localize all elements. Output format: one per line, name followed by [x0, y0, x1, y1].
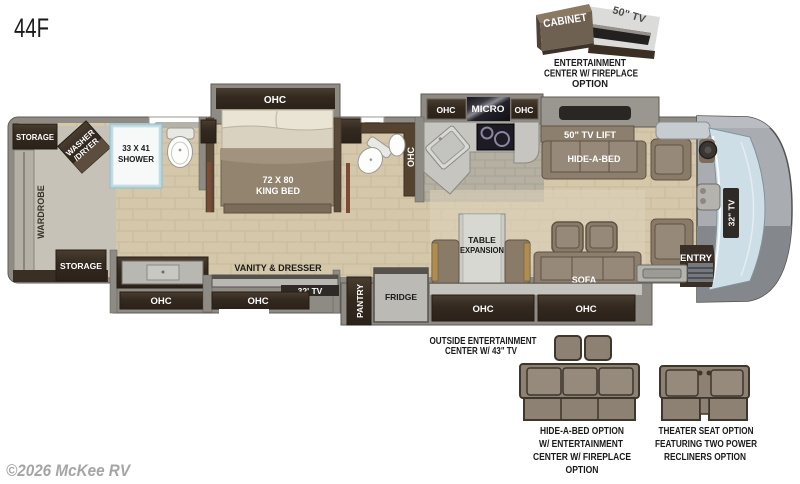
svg-text:TABLE: TABLE [468, 235, 496, 245]
svg-text:HIDE-A-BED OPTION: HIDE-A-BED OPTION [540, 425, 624, 437]
svg-text:OHC: OHC [575, 304, 596, 315]
svg-text:32" TV: 32" TV [727, 199, 737, 226]
svg-text:ENTERTAINMENT: ENTERTAINMENT [554, 58, 626, 69]
svg-text:THEATER SEAT OPTION: THEATER SEAT OPTION [659, 425, 754, 437]
svg-text:VANITY & DRESSER: VANITY & DRESSER [234, 263, 322, 273]
svg-text:33 X 41: 33 X 41 [122, 144, 150, 153]
svg-text:PANTRY: PANTRY [355, 284, 365, 318]
svg-text:FRIDGE: FRIDGE [385, 292, 417, 302]
svg-text:OHC: OHC [264, 95, 286, 106]
svg-text:SHOWER: SHOWER [118, 155, 154, 164]
svg-text:RECLINERS OPTION: RECLINERS OPTION [664, 451, 746, 463]
svg-text:OHC: OHC [406, 147, 416, 168]
svg-text:FEATURING TWO POWER: FEATURING TWO POWER [655, 438, 757, 450]
svg-text:OHC: OHC [515, 105, 534, 115]
svg-text:MICRO: MICRO [472, 104, 505, 114]
svg-text:OHC: OHC [472, 304, 493, 315]
svg-text:W/ ENTERTAINMENT: W/ ENTERTAINMENT [539, 438, 623, 450]
svg-text:CENTER W/ FIREPLACE: CENTER W/ FIREPLACE [544, 69, 638, 80]
svg-text:ENTRY: ENTRY [680, 253, 712, 263]
svg-text:OPTION: OPTION [566, 464, 599, 476]
svg-text:HIDE-A-BED: HIDE-A-BED [568, 154, 621, 164]
svg-text:WARDROBE: WARDROBE [36, 185, 46, 239]
svg-text:50" TV LIFT: 50" TV LIFT [564, 130, 617, 140]
svg-text:STORAGE: STORAGE [60, 262, 103, 271]
svg-text:72 X 80: 72 X 80 [262, 175, 293, 185]
svg-text:44F: 44F [14, 13, 49, 43]
svg-text:OPTION: OPTION [572, 79, 608, 90]
svg-text:STORAGE: STORAGE [16, 133, 55, 142]
svg-text:CENTER W/ FIREPLACE: CENTER W/ FIREPLACE [533, 451, 631, 463]
svg-text:©2026 McKee RV: ©2026 McKee RV [6, 461, 131, 480]
svg-text:KING BED: KING BED [256, 186, 301, 196]
svg-text:OHC: OHC [150, 296, 171, 307]
svg-text:OHC: OHC [247, 296, 268, 307]
svg-text:OHC: OHC [437, 105, 456, 115]
svg-text:CENTER W/ 43" TV: CENTER W/ 43" TV [445, 346, 517, 357]
svg-text:EXPANSION: EXPANSION [460, 245, 504, 255]
